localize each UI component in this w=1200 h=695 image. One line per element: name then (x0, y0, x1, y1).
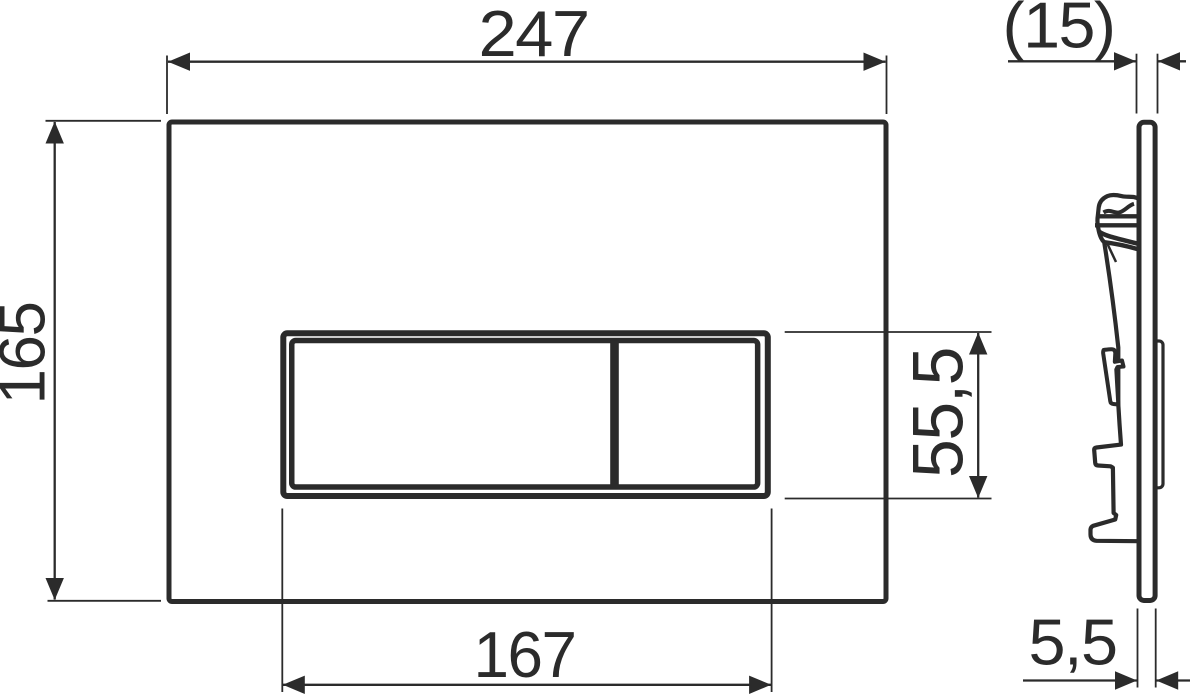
svg-text:(15): (15) (1003, 0, 1115, 62)
svg-text:167: 167 (474, 618, 576, 691)
svg-text:247: 247 (479, 0, 589, 70)
svg-text:165: 165 (0, 303, 59, 405)
svg-text:55,5: 55,5 (900, 348, 979, 478)
svg-text:5,5: 5,5 (1029, 606, 1117, 679)
